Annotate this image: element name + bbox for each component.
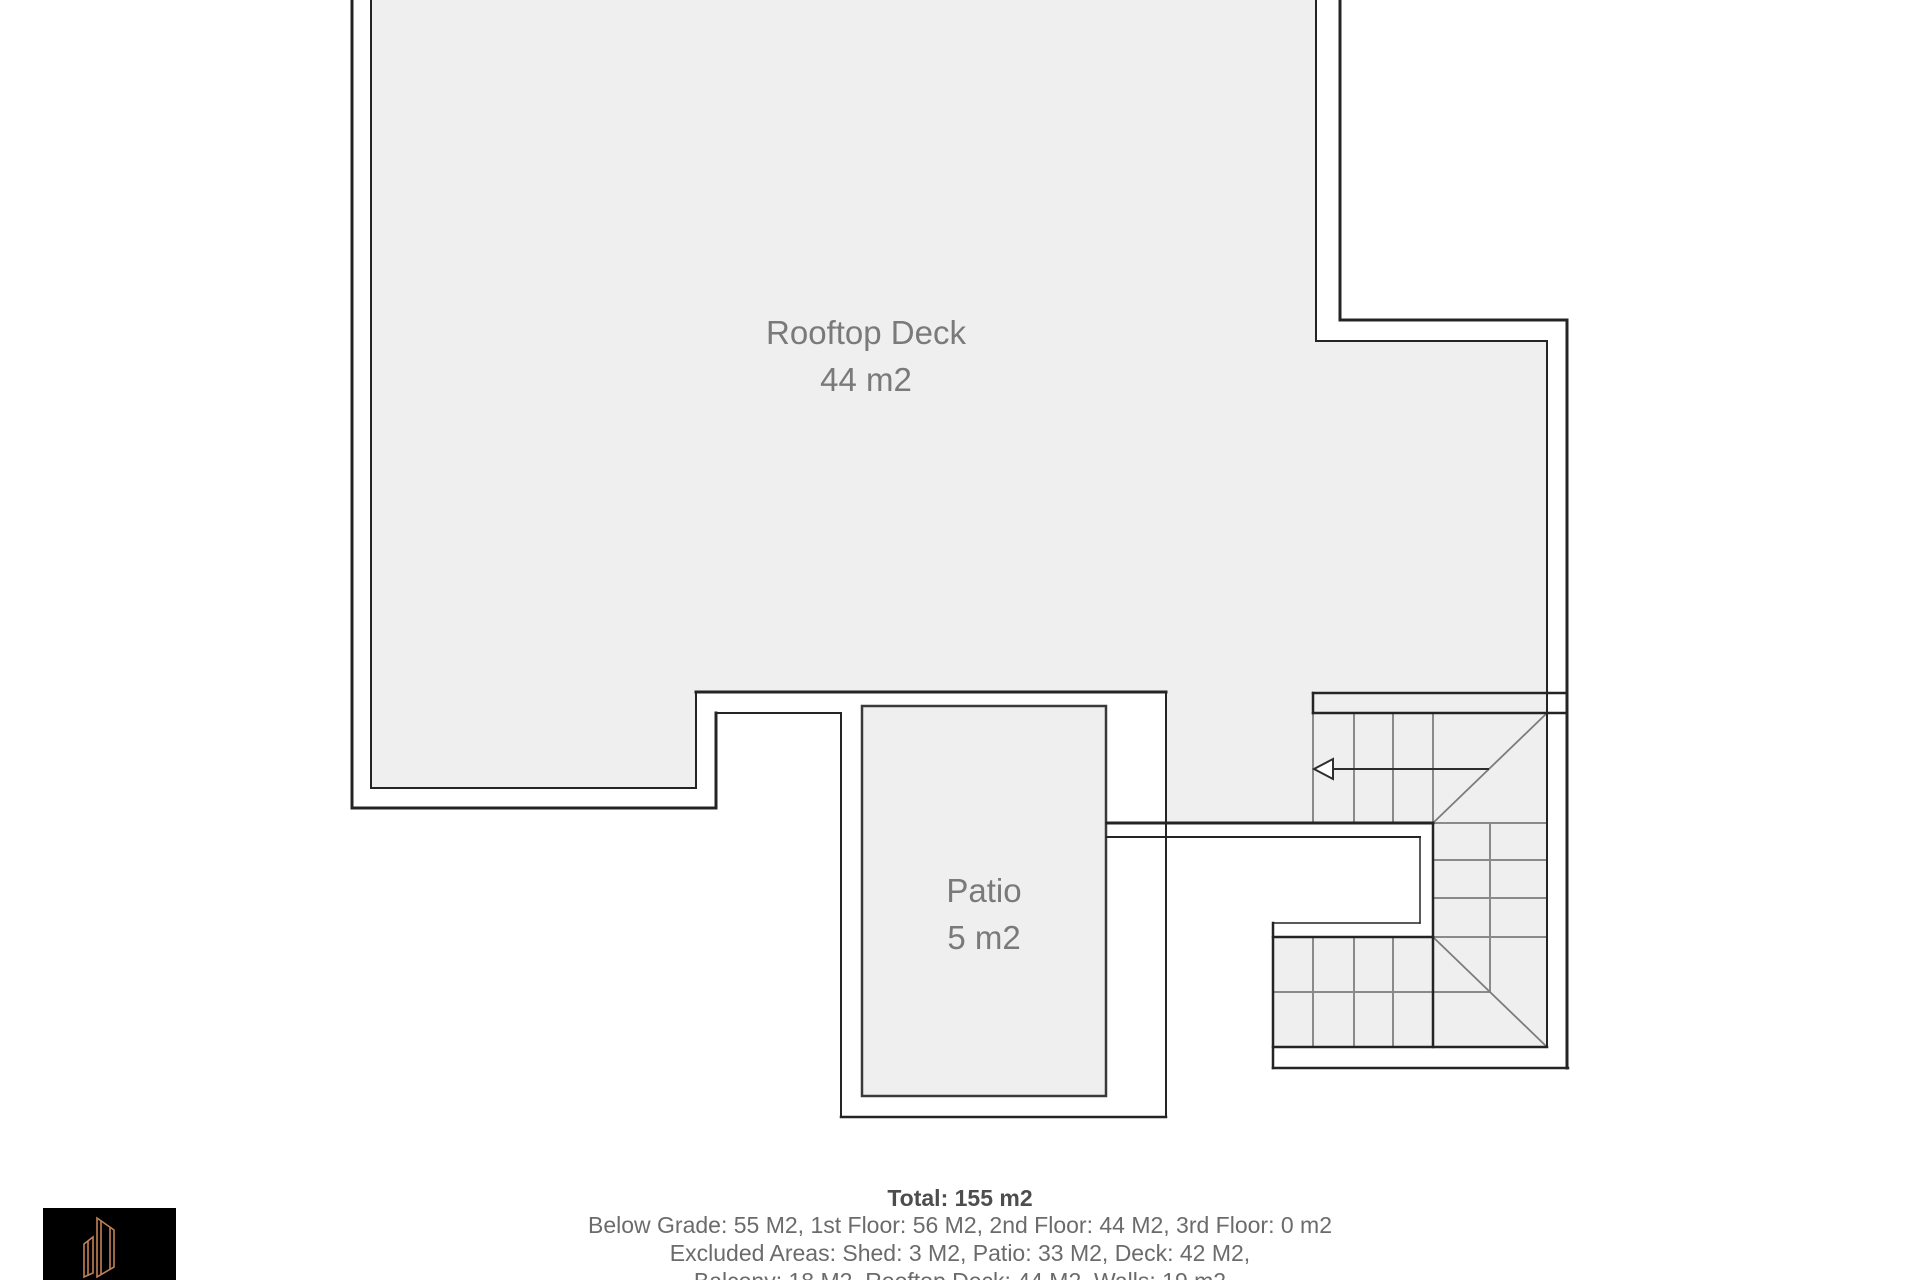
summary-excluded-line1: Excluded Areas: Shed: 3 M2, Patio: 33 M2… [670,1240,1250,1266]
rooftop-deck-area-label: 44 m2 [820,361,912,398]
floor-plan-page: Rooftop Deck 44 m2 Patio 5 m2 Total: 155… [0,0,1920,1280]
stairs-lower-run [1273,823,1547,1047]
summary-floors: Below Grade: 55 M2, 1st Floor: 56 M2, 2n… [588,1212,1332,1238]
patio-label: Patio [946,872,1021,909]
summary-excluded-line2: Balcony: 18 M2, Rooftop Deck: 44 M2, Wal… [694,1268,1226,1280]
rooftop-deck-label: Rooftop Deck [766,314,966,351]
summary-total: Total: 155 m2 [887,1185,1032,1211]
area-summary: Total: 155 m2 Below Grade: 55 M2, 1st Fl… [588,1185,1332,1280]
floor-plan-canvas: Rooftop Deck 44 m2 Patio 5 m2 Total: 155… [0,0,1920,1280]
patio-area-label: 5 m2 [947,919,1020,956]
stair-landing-band [1313,693,1547,713]
company-logo [43,1208,176,1280]
